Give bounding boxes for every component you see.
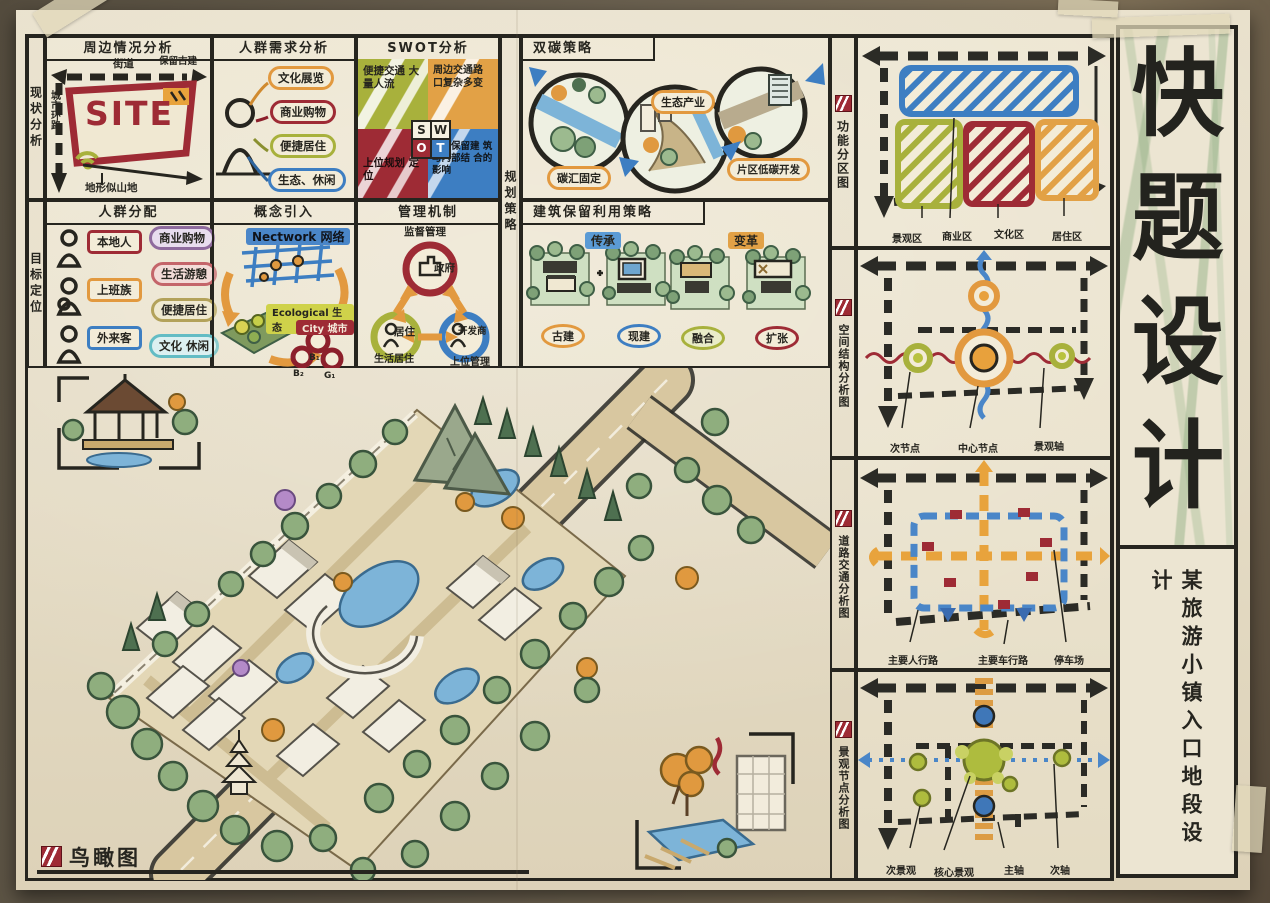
people-icons xyxy=(53,228,89,368)
crowd-need: 文化 休闲 xyxy=(149,334,219,358)
logo-mark-icon xyxy=(835,95,852,112)
strip-landscape-nodes: 景观节点分析图 xyxy=(830,670,856,880)
structure-legend: 景观轴 xyxy=(1034,438,1064,453)
carbon-step: 碳汇固定 xyxy=(547,166,611,190)
strip-label: 功能分区图 xyxy=(835,120,852,190)
panel-site-analysis: 周边情况分析 SITE 街道 保留古建 城市环路 地形似山地 xyxy=(45,36,212,200)
demand-item: 文化展览 xyxy=(268,66,334,90)
birdseye-view: > xyxy=(27,368,830,880)
zoning-sketch xyxy=(858,38,1110,224)
traffic-legend: 停车场 xyxy=(1054,652,1084,667)
crowd-group: 上班族 xyxy=(87,278,142,302)
logo-mark-icon xyxy=(835,721,852,738)
zoning-legend: 文化区 xyxy=(994,226,1024,241)
circle-low-carbon-district xyxy=(717,69,805,157)
strip-road-traffic: 道路交通分析图 xyxy=(830,458,856,670)
panel-title: 双碳策略 xyxy=(523,38,655,61)
strip-label: 现状分析 xyxy=(28,86,45,150)
supervision-label: 监督管理 xyxy=(404,226,446,239)
panel-title: 建筑保留利用策略 xyxy=(523,202,705,225)
swot-weakness: 周边交通路 口复杂多变 xyxy=(428,59,498,129)
ring-road-label: 城市环路 xyxy=(47,90,60,130)
birdseye-label: 鸟瞰图 xyxy=(69,842,141,872)
heritage-tag: 变革 xyxy=(728,232,764,249)
project-subtitle: 某旅游小镇入口地段设计 xyxy=(1146,569,1206,869)
zoning-legend: 商业区 xyxy=(942,228,972,243)
tape-top-mid xyxy=(1058,0,1119,18)
city-label: City 城市 xyxy=(296,320,354,335)
title-column: 快 题 设 计 某旅游小镇入口地段设计 xyxy=(1116,25,1238,878)
strip-label: 道路交通分析图 xyxy=(835,535,851,619)
panel-management: 管理机制 监督管理 政府 居住 xyxy=(356,200,500,368)
paper-crease xyxy=(516,10,518,890)
zoning-legend: 景观区 xyxy=(892,230,922,245)
carbon-step: 生态产业 xyxy=(651,90,715,114)
preserved-building-label: 保留古建 xyxy=(159,56,197,68)
swot-strength: 便捷交通 大量人流 xyxy=(358,59,428,129)
structure-sketch xyxy=(858,250,1110,434)
landscape-legend: 次景观 xyxy=(886,862,916,877)
birdseye-underline xyxy=(37,870,529,874)
concept-sketch xyxy=(214,225,354,368)
logo-mark-icon xyxy=(41,846,62,867)
title-char: 题 xyxy=(1128,163,1228,279)
management-sketch xyxy=(358,225,498,368)
swot-letter-t: T xyxy=(430,138,451,159)
logo-mark-icon xyxy=(835,299,852,316)
landscape-legend: 次轴 xyxy=(1050,862,1070,877)
strip-label: 目标定位 xyxy=(28,252,45,316)
title-char: 计 xyxy=(1128,411,1228,527)
panel-concept: 概念引入 xyxy=(212,200,356,368)
title-divider xyxy=(1120,545,1234,549)
panel-title: SWOT分析 xyxy=(358,38,498,61)
diagram-spatial-structure: 次节点 中心节点 景观轴 xyxy=(856,248,1112,458)
swot-w-text: 周边交通路 口复杂多变 xyxy=(433,65,495,90)
panel-crowd-allocation: 人群分配 本地人 上班族 外来客 商业购物 生活游憩 便捷居住 文化 休闲 xyxy=(45,200,212,368)
demand-item: 商业购物 xyxy=(270,100,336,124)
stage-modern: 现建 xyxy=(617,324,661,348)
courtyard-detail-sketch xyxy=(631,728,799,874)
panel-title: 概念引入 xyxy=(214,202,354,225)
network-label: Nectwork 网络 xyxy=(246,228,350,245)
logo-mark-icon xyxy=(835,510,852,527)
traffic-legend: 主要车行路 xyxy=(978,652,1028,667)
gov-label: 政府 xyxy=(434,262,455,275)
landscape-sketch xyxy=(858,672,1110,856)
crowd-need: 商业购物 xyxy=(149,226,215,250)
panel-dual-carbon: 双碳策略 xyxy=(521,36,830,200)
traffic-legend: 主要人行路 xyxy=(888,652,938,667)
panel-swot: SWOT分析 便捷交通 大量人流 周边交通路 口复杂多变 上位规划 定位 周边保… xyxy=(356,36,500,200)
site-center-label: SITE xyxy=(85,93,174,134)
diagram-functional-zoning: 景观区 商业区 文化区 居住区 xyxy=(856,36,1112,248)
city-node: B₁ xyxy=(309,353,320,364)
panel-title: 人群分配 xyxy=(47,202,210,225)
diagram-landscape-nodes: 次景观 核心景观 主轴 次轴 xyxy=(856,670,1112,880)
network-grid xyxy=(242,241,334,287)
panel-heritage-strategy: 建筑保留利用策略 xyxy=(521,200,830,368)
landscape-legend: 主轴 xyxy=(1004,862,1024,877)
stage-ancient: 古建 xyxy=(541,324,585,348)
structure-legend: 次节点 xyxy=(890,440,920,455)
resident-sub: 生活居住 xyxy=(374,354,414,367)
drawing-paper: 现状分析 目标定位 规划策略 周边情况分析 xyxy=(16,10,1250,890)
panel-title: 管理机制 xyxy=(358,202,498,225)
landscape-legend: 核心景观 xyxy=(934,864,974,879)
zoning-legend: 居住区 xyxy=(1052,228,1082,243)
title-char: 设 xyxy=(1128,287,1228,403)
circle-carbon-sink xyxy=(531,75,627,171)
developer-label: 开发商 xyxy=(458,326,487,338)
strip-target-positioning: 目标定位 xyxy=(27,200,45,368)
street-label: 街道 xyxy=(113,58,134,71)
traffic-sketch xyxy=(858,460,1110,648)
crowd-need: 便捷居住 xyxy=(151,298,217,322)
strip-functional-zoning: 功能分区图 xyxy=(830,36,856,248)
swot-o-text: 上位规划 定位 xyxy=(363,157,423,183)
swot-s-text: 便捷交通 大量人流 xyxy=(363,65,423,91)
stage-fusion: 融合 xyxy=(681,326,725,350)
resident-label: 居住 xyxy=(394,326,415,339)
crowd-group: 外来客 xyxy=(87,326,142,350)
crowd-need: 生活游憩 xyxy=(151,262,217,286)
stage-expansion: 扩张 xyxy=(755,326,799,350)
pavilion-detail-sketch xyxy=(49,372,207,474)
panel-crowd-demand: 人群需求分析 文化展览 商业购物 便捷居住 生态、休闲 xyxy=(212,36,356,200)
demand-item: 生态、休闲 xyxy=(268,168,346,192)
crowd-group: 本地人 xyxy=(87,230,142,254)
panel-title: 人群需求分析 xyxy=(214,38,354,61)
strip-label: 空间结构分析图 xyxy=(835,324,851,408)
heritage-tag: 传承 xyxy=(585,232,621,249)
tape-right xyxy=(1232,785,1267,853)
strip-label: 景观节点分析图 xyxy=(835,746,851,830)
photo-of-design-board: 现状分析 目标定位 规划策略 周边情况分析 xyxy=(0,0,1270,903)
terrain-label: 地形似山地 xyxy=(85,182,138,195)
strip-spatial-structure: 空间结构分析图 xyxy=(830,248,856,458)
demand-item: 便捷居住 xyxy=(270,134,336,158)
strip-status-analysis: 现状分析 xyxy=(27,36,45,200)
diagram-road-traffic: 主要人行路 主要车行路 停车场 xyxy=(856,458,1112,670)
swot-letter-o: O xyxy=(411,138,432,159)
title-char: 快 xyxy=(1128,39,1228,155)
carbon-step: 片区低碳开发 xyxy=(727,158,810,181)
structure-legend: 中心节点 xyxy=(958,440,998,455)
